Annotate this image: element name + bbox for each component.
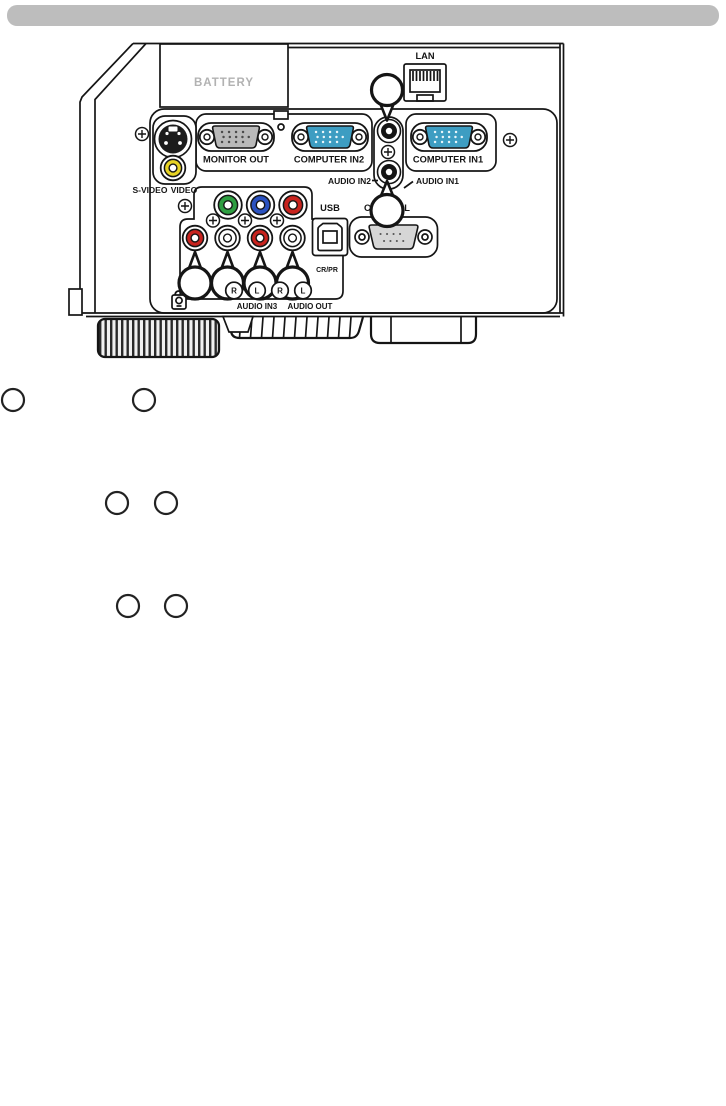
audio-in2-label: AUDIO IN2 <box>328 176 371 186</box>
manual-page: BATTERY LAN MONITOR OUT COMPUTER IN2 COM… <box>0 0 726 1106</box>
audio-out-label: AUDIO OUT <box>288 302 333 311</box>
battery-label: BATTERY <box>194 77 254 89</box>
audio-in3-r-jack <box>183 226 208 251</box>
reference-circle <box>155 492 177 514</box>
channel-badge-label: R <box>277 287 283 296</box>
rear-panel-diagram: BATTERY LAN MONITOR OUT COMPUTER IN2 COM… <box>0 0 726 1106</box>
screw-icon <box>136 128 149 141</box>
lan-port <box>404 64 446 101</box>
lan-label: LAN <box>415 51 434 61</box>
monitor-out-label: MONITOR OUT <box>203 155 269 165</box>
screw-icon <box>382 146 395 159</box>
callout-circle <box>179 267 211 299</box>
computer-in1-port <box>411 123 487 151</box>
audio-in2-jack <box>378 120 401 143</box>
left-foot-tab <box>69 289 82 315</box>
screw-icon <box>271 214 284 227</box>
video-label: VIDEO <box>171 185 198 195</box>
component-y-jack <box>214 191 242 219</box>
monitor-out-port <box>198 123 274 151</box>
video-jack <box>161 156 186 181</box>
s-video-label: S-VIDEO <box>133 185 168 195</box>
reference-circle <box>133 389 155 411</box>
audio-out-r-jack <box>248 226 273 251</box>
screw-icon <box>239 214 252 227</box>
component-cr-pr-label: CR/PR <box>316 267 338 274</box>
computer-in2-port <box>292 123 368 151</box>
battery-compartment <box>160 44 288 107</box>
rear-foot <box>371 316 476 343</box>
usb-port <box>313 219 348 256</box>
screw-icon <box>179 200 192 213</box>
channel-badge-label: L <box>255 287 260 296</box>
audio-in1-label: AUDIO IN1 <box>416 176 459 186</box>
component-cr-pr-jack <box>279 191 307 219</box>
callout-circle <box>372 75 403 106</box>
panel-hole <box>278 124 284 130</box>
audio-in1-leader-line <box>404 182 413 189</box>
bottom-step <box>223 317 253 333</box>
audio-in3-label: AUDIO IN3 <box>237 302 278 311</box>
audio-in3-l-jack <box>215 226 240 251</box>
screw-icon <box>207 214 220 227</box>
elevator-knob <box>98 319 219 357</box>
component-cb-pb-jack <box>247 191 275 219</box>
reference-circle <box>2 389 24 411</box>
reference-circle <box>117 595 139 617</box>
callout-circle <box>371 195 403 227</box>
computer-in1-label: COMPUTER IN1 <box>413 155 483 165</box>
usb-label: USB <box>320 203 340 213</box>
audio-in1-jack <box>378 161 401 184</box>
panel-notch <box>274 111 288 119</box>
channel-badge-label: R <box>231 287 237 296</box>
channel-badge-label: L <box>301 287 306 296</box>
s-video-port <box>155 121 192 158</box>
audio-out-l-jack <box>280 226 305 251</box>
reference-circle <box>106 492 128 514</box>
reference-circle <box>165 595 187 617</box>
computer-in2-label: COMPUTER IN2 <box>294 155 364 165</box>
screw-icon <box>504 134 517 147</box>
